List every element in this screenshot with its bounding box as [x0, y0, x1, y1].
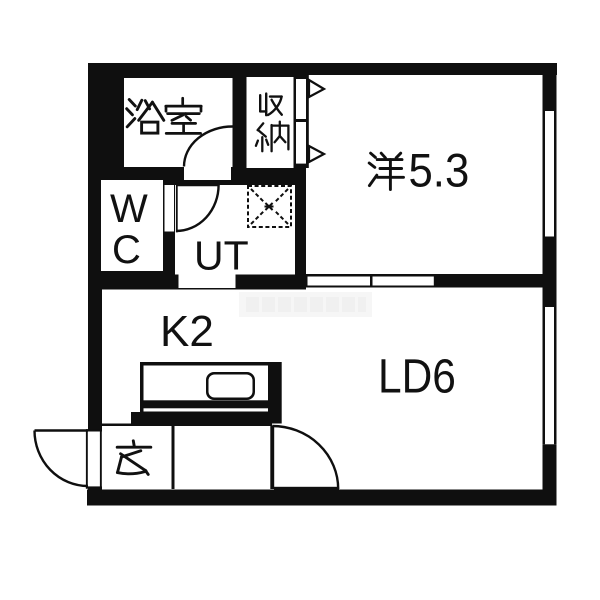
svg-text:W: W [110, 187, 148, 231]
svg-text:C: C [112, 228, 141, 272]
svg-text:UT: UT [194, 233, 249, 279]
svg-text:5.3: 5.3 [409, 144, 470, 197]
svg-text:LD6: LD6 [378, 349, 456, 403]
svg-text:K2: K2 [160, 307, 214, 356]
